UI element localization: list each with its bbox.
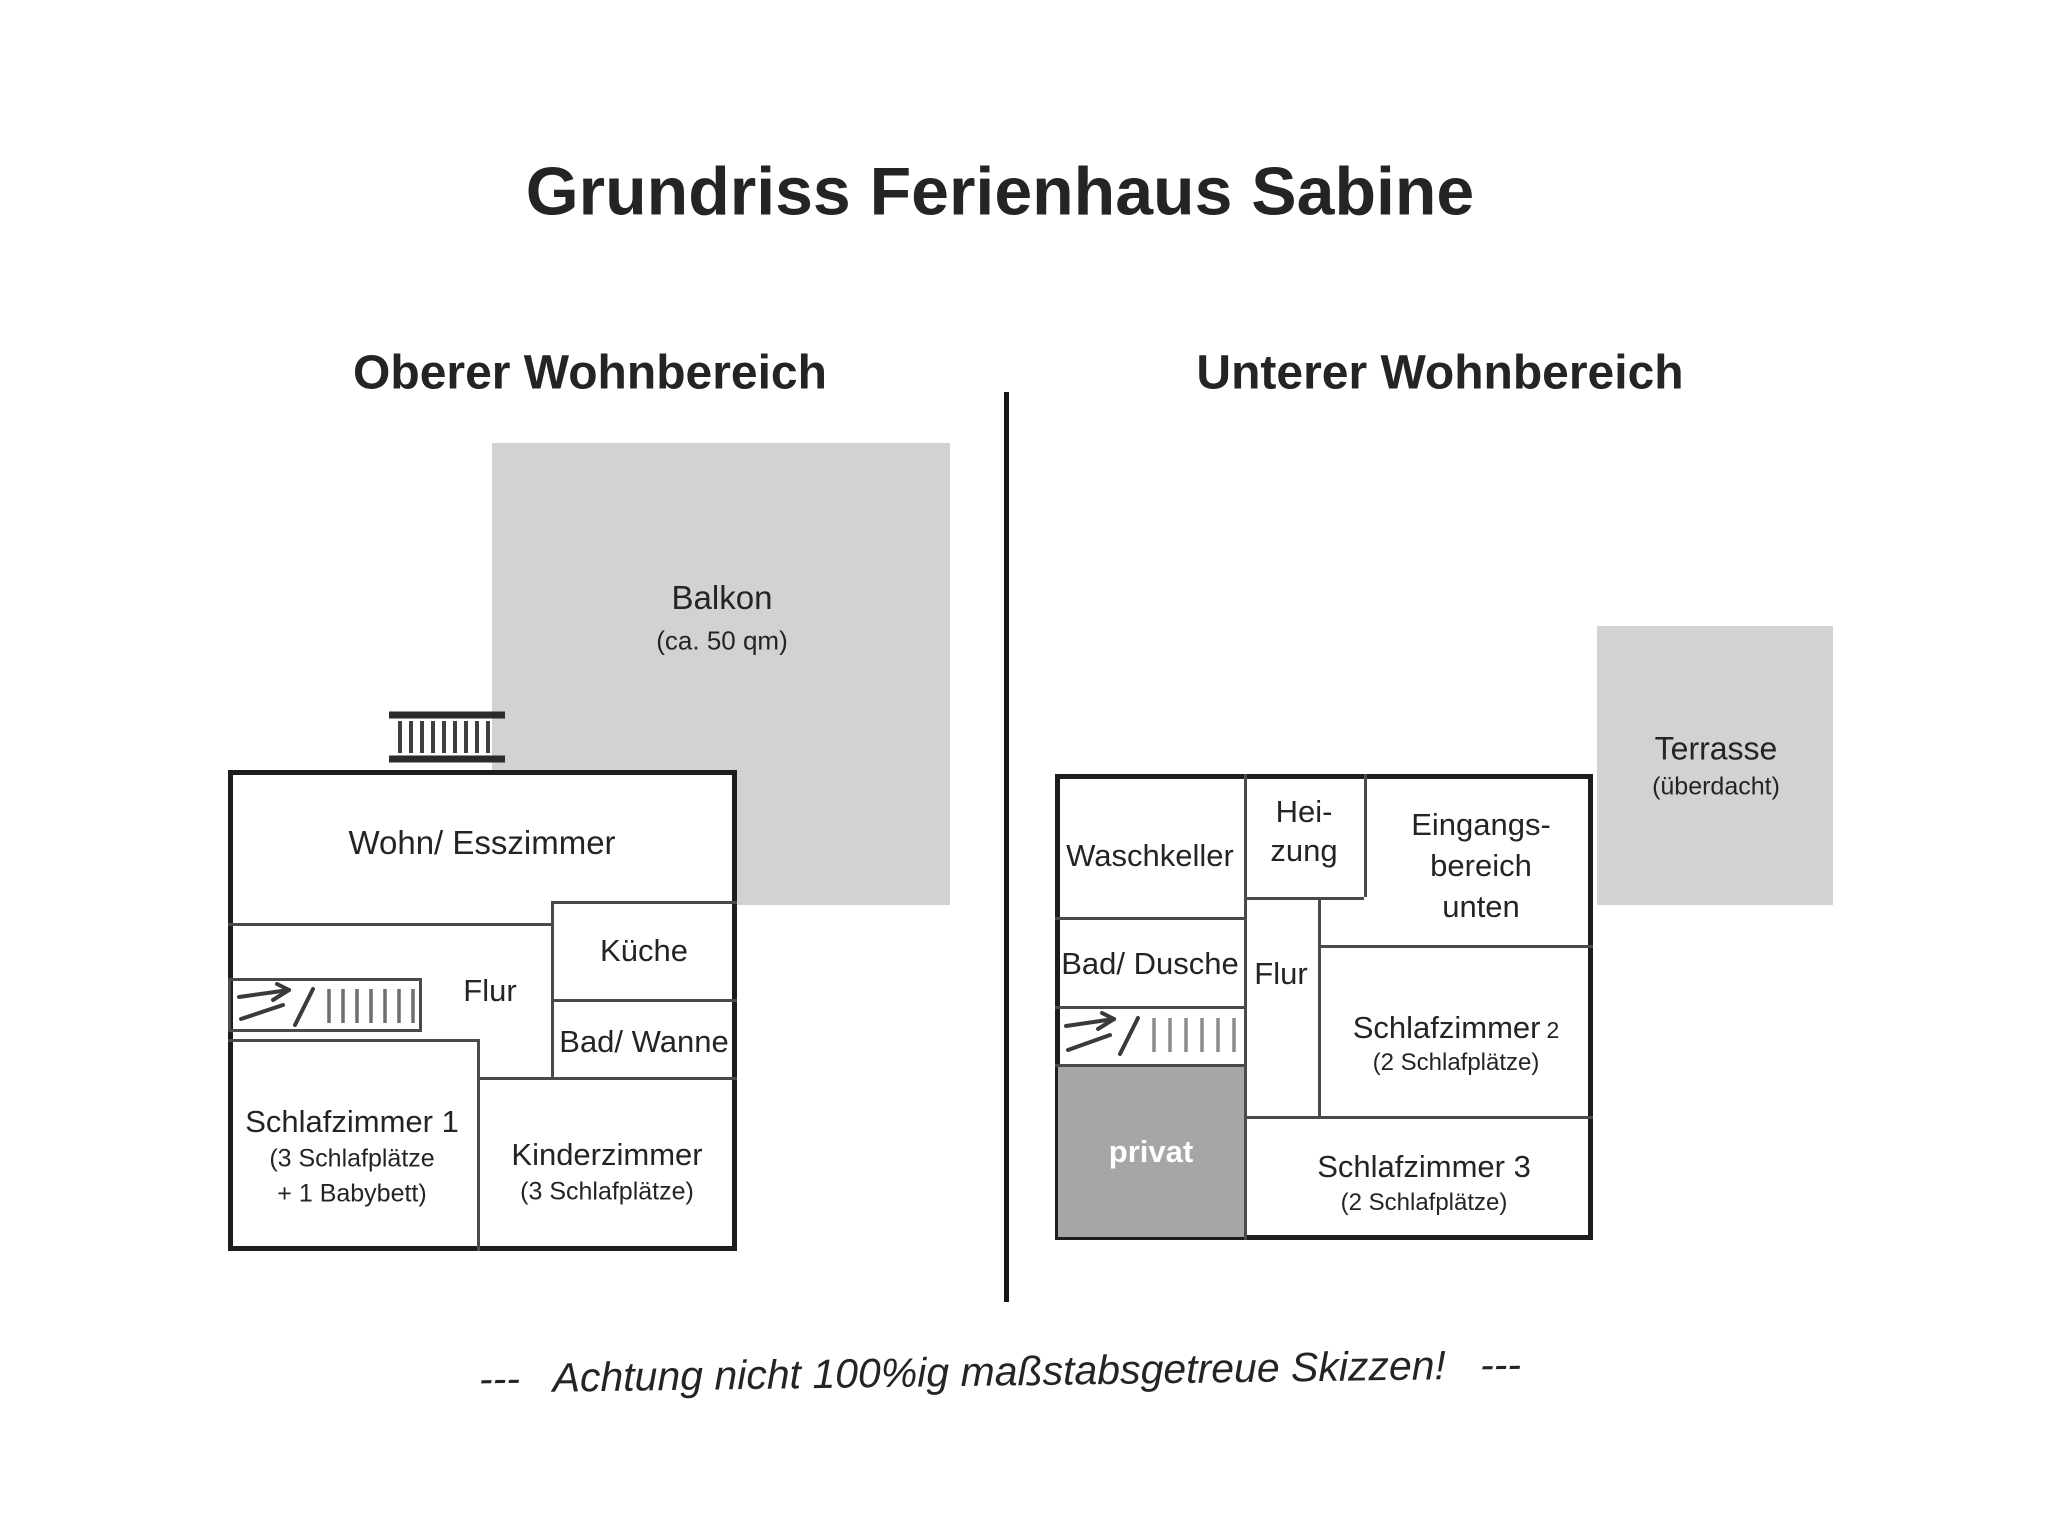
room-privat-label: privat <box>1109 1135 1193 1169</box>
room-wohn-esszimmer-label: Wohn/ Esszimmer <box>348 825 615 861</box>
wall-eingang-bottom <box>1318 945 1593 948</box>
room-schlafzimmer3-label: Schlafzimmer 3 <box>1317 1150 1531 1184</box>
room-schlafzimmer1-note2: + 1 Babybett) <box>277 1180 426 1208</box>
room-schlafzimmer2-note: (2 Schlafplätze) <box>1373 1050 1540 1076</box>
upper-stairs-icon <box>231 981 419 1029</box>
room-flur-lower-label: Flur <box>1254 957 1307 991</box>
section-divider-line <box>1004 392 1009 1302</box>
room-kueche-label: Küche <box>600 934 688 968</box>
wall-heizung-bottom <box>1244 897 1364 900</box>
wall-left-column-divider <box>1244 774 1247 1240</box>
room-kinderzimmer-note: (3 Schlafplätze) <box>520 1178 694 1206</box>
floorplan-page: Grundriss Ferienhaus Sabine Oberer Wohnb… <box>0 0 2048 1538</box>
room-bad-wanne-label: Bad/ Wanne <box>559 1025 728 1059</box>
page-title: Grundriss Ferienhaus Sabine <box>526 155 1474 230</box>
lower-stairs-icon <box>1058 1008 1244 1062</box>
room-eingang-line3: unten <box>1442 890 1520 924</box>
terrasse-label: Terrasse <box>1655 731 1778 766</box>
schlafzimmer2-number: 2 <box>1546 1017 1559 1043</box>
room-schlafzimmer2-label: Schlafzimmer2 <box>1353 1011 1560 1045</box>
room-heizung-line2: zung <box>1270 834 1337 868</box>
wall-wohnzimmer-bottom <box>228 923 551 926</box>
room-heizung-line1: Hei- <box>1276 795 1333 829</box>
room-flur-upper-label: Flur <box>463 974 516 1008</box>
wall-schlafzimmer3-top <box>1244 1116 1593 1119</box>
wall-schlafzimmer1-top <box>228 1039 477 1042</box>
wall-flur-right <box>1318 897 1321 1116</box>
room-schlafzimmer1-label: Schlafzimmer 1 <box>245 1105 459 1139</box>
wall-privat-top <box>1055 1064 1244 1067</box>
balcony-stairs-icon <box>386 708 508 766</box>
schlafzimmer2-text: Schlafzimmer <box>1353 1010 1541 1045</box>
room-waschkeller-label: Waschkeller <box>1066 839 1234 873</box>
footer-disclaimer: --- Achtung nicht 100%ig maßstabsgetreue… <box>479 1342 1522 1402</box>
room-bad-dusche-label: Bad/ Dusche <box>1061 947 1239 981</box>
wall-schlafzimmer1-right <box>477 1039 480 1251</box>
wall-heizung-right <box>1364 774 1367 897</box>
section-heading-upper: Oberer Wohnbereich <box>353 348 827 401</box>
wall-kueche-bottom <box>551 999 737 1002</box>
room-schlafzimmer3-note: (2 Schlafplätze) <box>1341 1190 1508 1216</box>
wall-kueche-top <box>551 901 737 904</box>
room-schlafzimmer1-note1: (3 Schlafplätze <box>269 1145 434 1173</box>
room-eingang-line2: bereich <box>1430 849 1532 883</box>
wall-waschkeller-bottom <box>1055 917 1244 920</box>
wall-kueche-bad-left <box>551 901 554 1077</box>
balkon-label: Balkon <box>672 580 773 616</box>
room-kinderzimmer-label: Kinderzimmer <box>511 1138 702 1172</box>
wall-badwanne-bottom-kinderzimmer-top <box>477 1077 737 1080</box>
balkon-size-note: (ca. 50 qm) <box>656 627 788 656</box>
terrasse-size-note: (überdacht) <box>1652 773 1780 801</box>
section-heading-lower: Unterer Wohnbereich <box>1196 348 1683 401</box>
room-eingang-line1: Eingangs- <box>1411 808 1551 842</box>
